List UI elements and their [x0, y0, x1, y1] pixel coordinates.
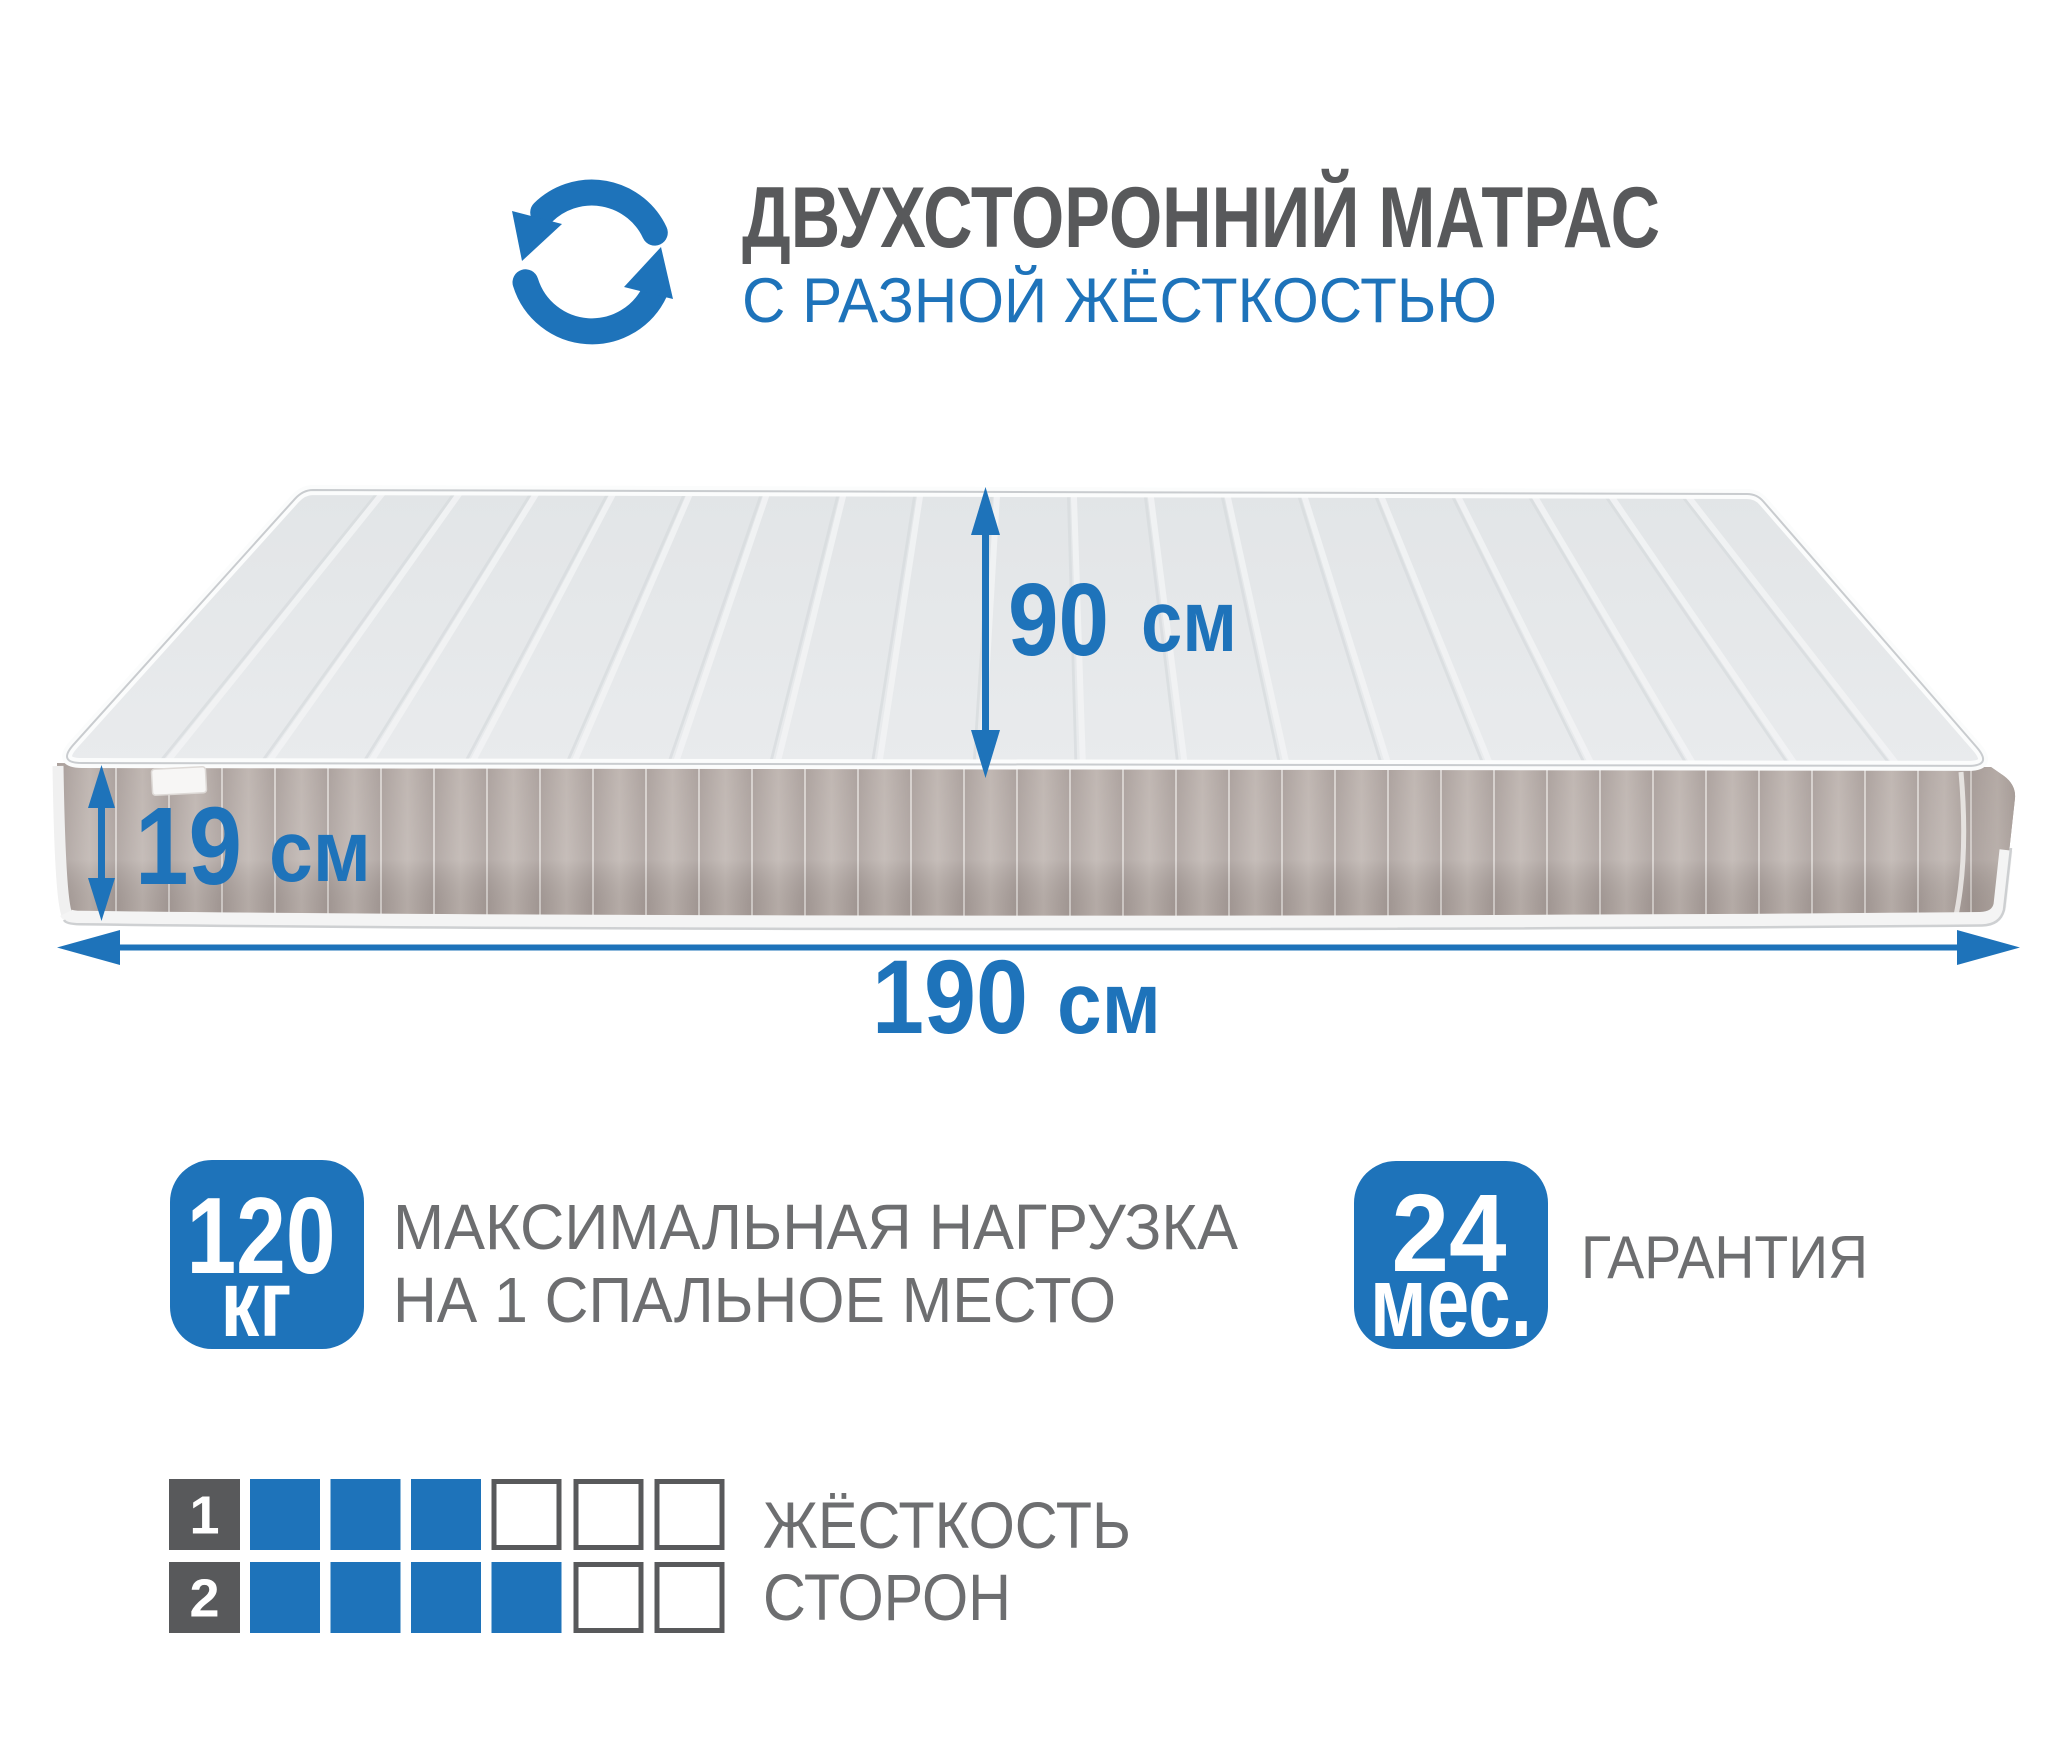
svg-text:1: 1	[189, 1486, 219, 1546]
svg-text:СТОРОН: СТОРОН	[763, 1560, 1011, 1634]
svg-text:см: см	[1141, 573, 1237, 670]
svg-text:90: 90	[1008, 562, 1109, 677]
svg-text:кг: кг	[221, 1251, 292, 1357]
svg-text:мес.: мес.	[1370, 1246, 1532, 1358]
svg-text:ДВУХСТОРОННИЙ МАТРАС: ДВУХСТОРОННИЙ МАТРАС	[742, 169, 1660, 266]
svg-text:ГАРАНТИЯ: ГАРАНТИЯ	[1581, 1224, 1868, 1291]
svg-text:19: 19	[135, 785, 242, 908]
svg-text:ЖЁСТКОСТЬ: ЖЁСТКОСТЬ	[763, 1488, 1131, 1562]
svg-text:2: 2	[189, 1569, 219, 1629]
svg-text:см: см	[269, 803, 371, 900]
svg-text:190: 190	[872, 939, 1028, 1056]
svg-text:НА 1 СПАЛЬНОЕ МЕСТО: НА 1 СПАЛЬНОЕ МЕСТО	[393, 1264, 1116, 1336]
svg-text:МАКСИМАЛЬНАЯ НАГРУЗКА: МАКСИМАЛЬНАЯ НАГРУЗКА	[393, 1191, 1238, 1263]
svg-text:см: см	[1057, 955, 1161, 1052]
svg-text:С РАЗНОЙ ЖЁСТКОСТЬЮ: С РАЗНОЙ ЖЁСТКОСТЬЮ	[742, 265, 1497, 336]
